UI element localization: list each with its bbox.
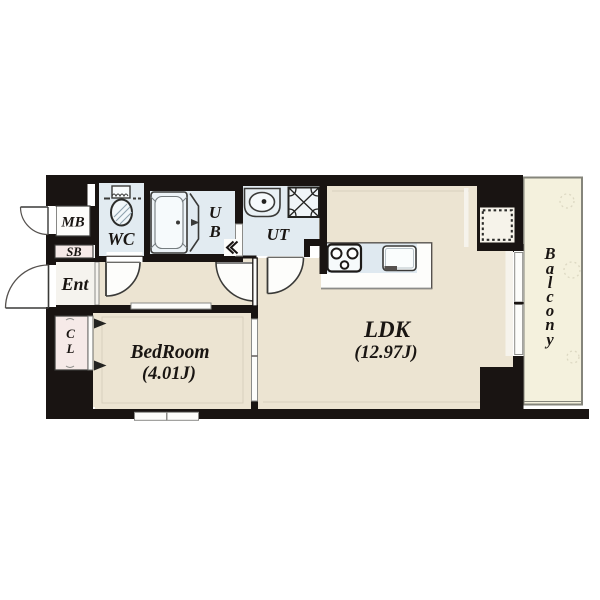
svg-text:UT: UT <box>267 225 290 244</box>
svg-text:(12.97J): (12.97J) <box>354 343 417 363</box>
svg-text:C: C <box>66 326 75 341</box>
svg-text:y: y <box>544 330 554 349</box>
svg-text:BedRoom: BedRoom <box>129 342 209 363</box>
svg-text:L: L <box>66 341 75 356</box>
svg-text:LDK: LDK <box>363 317 412 342</box>
svg-text:U: U <box>209 203 222 222</box>
svg-text:B: B <box>208 222 220 241</box>
svg-text:MB: MB <box>60 215 84 231</box>
svg-text:WC: WC <box>107 229 135 249</box>
svg-text:(4.01J): (4.01J) <box>142 364 196 384</box>
svg-text:Ent: Ent <box>60 274 89 294</box>
svg-text:SB: SB <box>66 245 81 259</box>
